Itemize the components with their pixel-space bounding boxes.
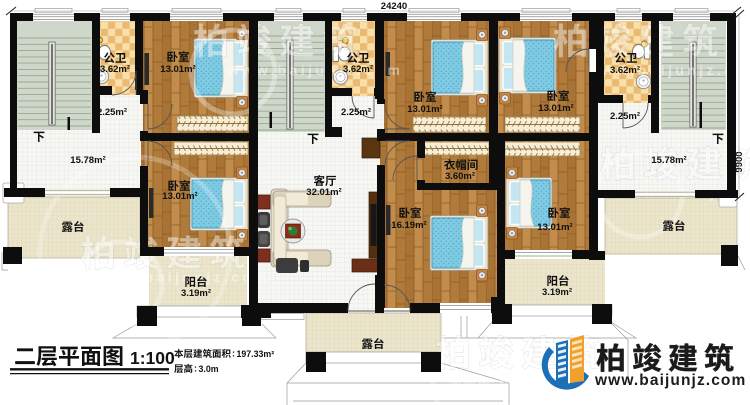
svg-text:3.19m²: 3.19m²: [181, 288, 211, 299]
svg-text:2.25m²: 2.25m²: [341, 107, 371, 118]
svg-text:13.01m²: 13.01m²: [160, 64, 195, 75]
svg-text:3.62m²: 3.62m²: [343, 64, 373, 75]
svg-text:3.60m²: 3.60m²: [445, 171, 475, 182]
svg-text:2.25m²: 2.25m²: [610, 111, 640, 122]
svg-text:www.baijunjz.com: www.baijunjz.com: [594, 372, 746, 389]
svg-text:9900: 9900: [734, 151, 745, 172]
svg-text:13.01m²: 13.01m²: [537, 222, 572, 233]
svg-text:32.01m²: 32.01m²: [306, 187, 341, 198]
svg-text:13.01m²: 13.01m²: [538, 103, 573, 114]
svg-text:15.78m²: 15.78m²: [70, 155, 105, 166]
svg-text:3.62m²: 3.62m²: [610, 65, 640, 76]
svg-text:1:100: 1:100: [130, 348, 175, 368]
svg-text:16.19m²: 16.19m²: [391, 220, 426, 231]
svg-text:15.78m²: 15.78m²: [651, 155, 686, 166]
svg-text:3.0m: 3.0m: [199, 364, 219, 374]
svg-text:3.62m²: 3.62m²: [100, 64, 130, 75]
svg-text::: :: [232, 349, 235, 359]
svg-text:24240: 24240: [381, 1, 407, 12]
svg-text:3.19m²: 3.19m²: [542, 287, 572, 298]
svg-text::: :: [194, 364, 197, 374]
svg-text:2.25m²: 2.25m²: [97, 107, 127, 118]
svg-text:13.01m²: 13.01m²: [162, 191, 197, 202]
svg-text:www.baijunjz.com: www.baijunjz.com: [94, 269, 270, 285]
svg-text:13.01m²: 13.01m²: [407, 104, 442, 115]
svg-text:197.33m²: 197.33m²: [237, 349, 275, 359]
